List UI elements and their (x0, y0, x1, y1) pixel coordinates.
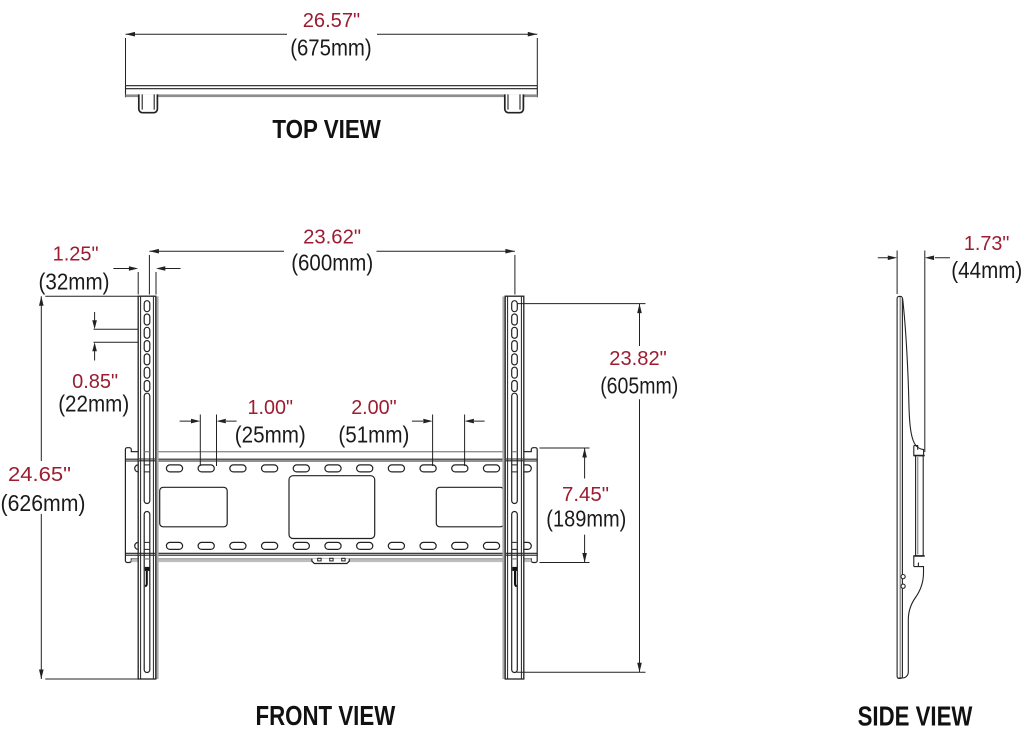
svg-text:(51mm): (51mm) (338, 422, 409, 448)
svg-text:1.73": 1.73" (964, 232, 1010, 255)
svg-text:TOP VIEW: TOP VIEW (272, 114, 381, 144)
svg-text:1.25": 1.25" (53, 242, 99, 265)
svg-text:24.65": 24.65" (8, 463, 71, 486)
svg-text:(44mm): (44mm) (951, 257, 1022, 283)
svg-text:0.85": 0.85" (72, 370, 118, 393)
svg-text:26.57": 26.57" (303, 9, 361, 32)
svg-text:2.00": 2.00" (351, 396, 397, 419)
svg-text:7.45": 7.45" (562, 483, 609, 506)
svg-text:(600mm): (600mm) (291, 249, 373, 275)
svg-text:(32mm): (32mm) (39, 269, 110, 295)
svg-text:1.00": 1.00" (248, 396, 294, 419)
svg-text:(605mm): (605mm) (600, 372, 678, 398)
svg-text:FRONT VIEW: FRONT VIEW (256, 700, 396, 731)
svg-text:(25mm): (25mm) (235, 422, 306, 448)
svg-text:23.62": 23.62" (303, 226, 361, 249)
svg-text:(22mm): (22mm) (58, 391, 129, 417)
svg-text:(626mm): (626mm) (1, 490, 86, 516)
svg-text:23.82": 23.82" (609, 347, 667, 370)
svg-text:SIDE VIEW: SIDE VIEW (858, 700, 973, 731)
svg-text:(189mm): (189mm) (546, 506, 626, 532)
svg-text:(675mm): (675mm) (290, 34, 372, 60)
